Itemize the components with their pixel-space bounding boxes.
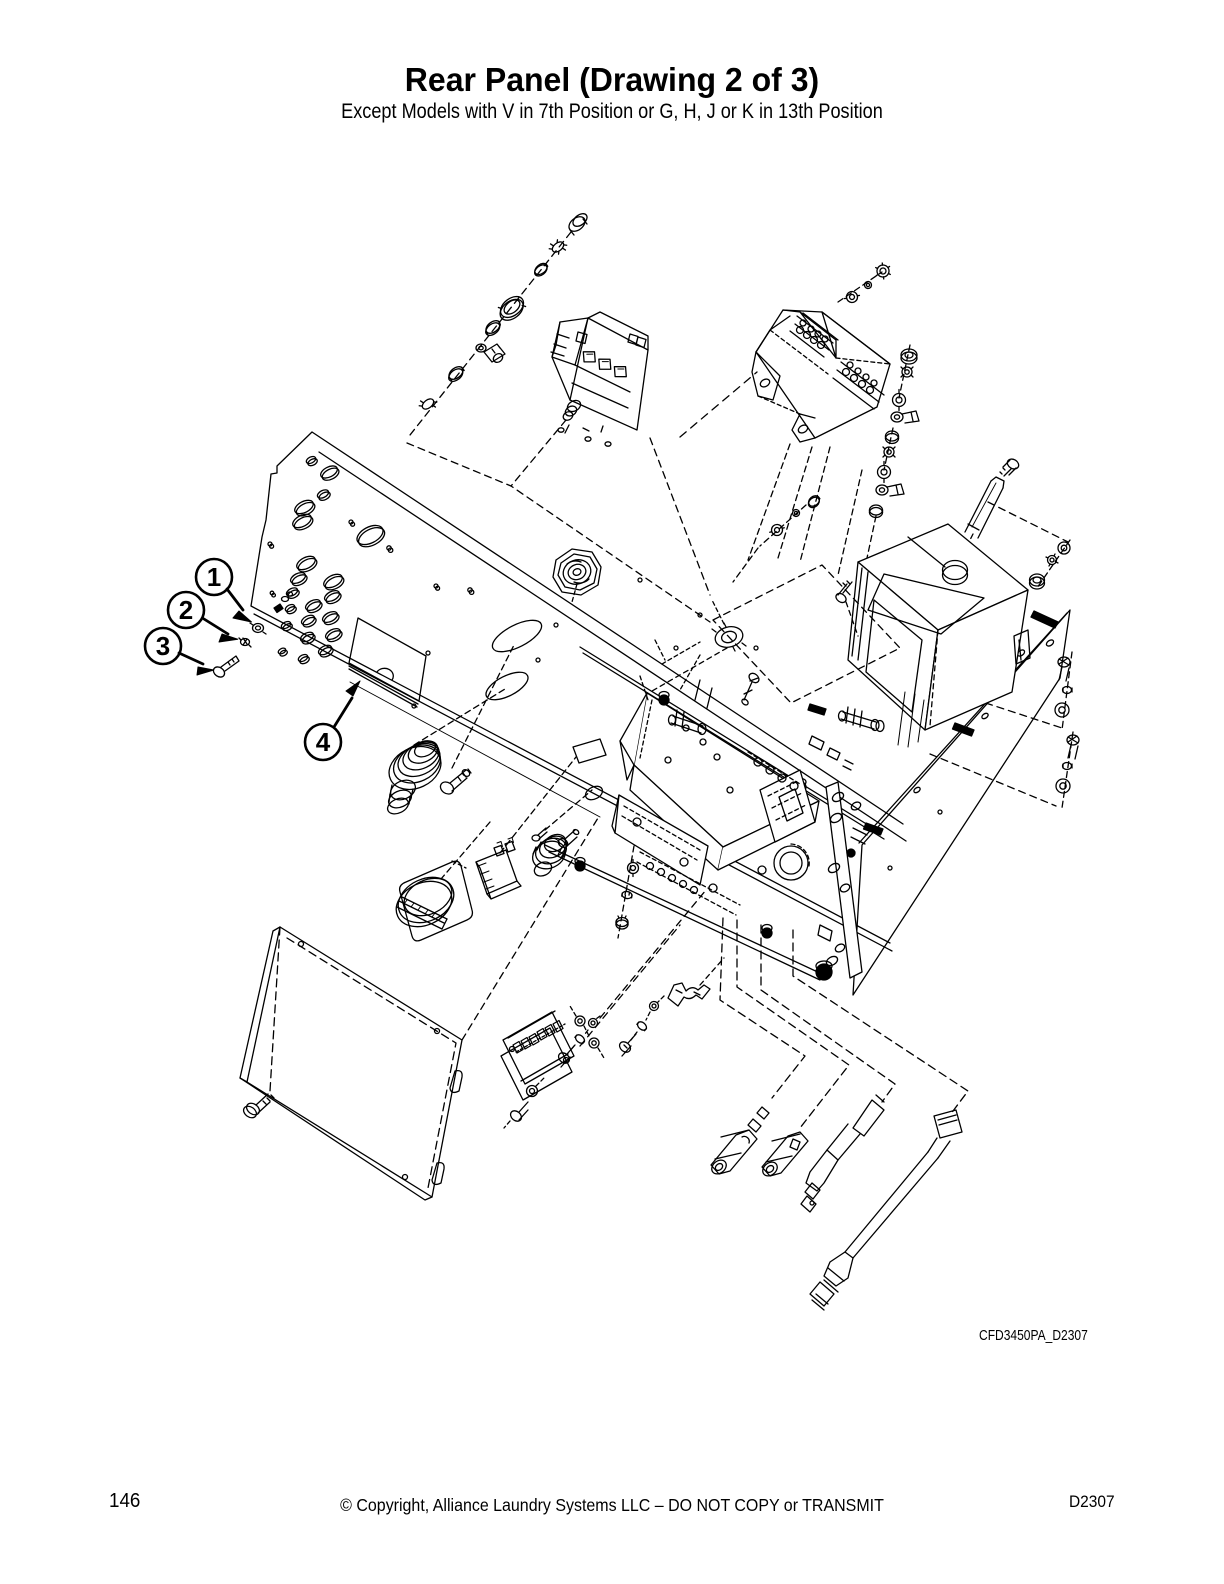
svg-text:2: 2 [179, 595, 193, 625]
svg-text:3: 3 [156, 631, 170, 661]
svg-text:1: 1 [207, 562, 221, 592]
svg-text:4: 4 [316, 727, 331, 757]
